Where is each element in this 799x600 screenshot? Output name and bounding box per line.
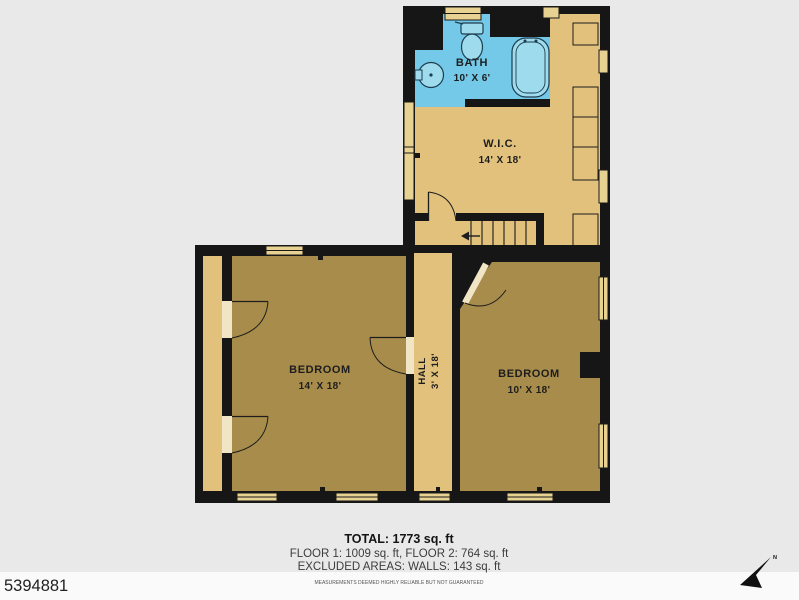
bedroom-right-label: BEDROOM	[498, 368, 560, 380]
bedroom-right-dims: 10' X 18'	[508, 385, 551, 396]
total-area-text: TOTAL: 1773 sq. ft	[344, 532, 454, 546]
bath-wall-notch-right	[490, 14, 550, 37]
window	[404, 102, 414, 200]
photo-id: 5394881	[4, 577, 68, 595]
bath-label: BATH	[456, 57, 488, 69]
bedroom-right-top-wall	[453, 253, 600, 262]
hall-label: HALL	[417, 357, 428, 384]
door-stop	[320, 487, 325, 491]
door-stop	[415, 153, 420, 158]
door-gap	[406, 337, 414, 374]
hall-dims: 3' X 18'	[430, 353, 441, 389]
disclaimer-text: MEASUREMENTS DEEMED HIGHLY RELIABLE BUT …	[314, 580, 483, 586]
lower-section: BEDROOM 14' X 18' HALL 3' X 18' BEDROOM …	[195, 245, 610, 503]
wic-label: W.I.C.	[483, 138, 517, 150]
bathtub-icon	[512, 38, 549, 97]
bath-dims: 10' X 6'	[454, 73, 491, 84]
excluded-areas-text: EXCLUDED AREAS: WALLS: 143 sq. ft	[298, 561, 502, 573]
bedroom-left-dims: 14' X 18'	[299, 381, 342, 392]
bath-lower-wall	[465, 99, 550, 107]
window	[543, 7, 559, 18]
door-stop	[537, 487, 542, 491]
left-closet	[203, 256, 222, 491]
floor-areas-text: FLOOR 1: 1009 sq. ft, FLOOR 2: 764 sq. f…	[290, 548, 509, 560]
door-gap	[222, 416, 232, 453]
floor-plan: BATH 10' X 6' W.I.C. 14' X 18'	[0, 0, 799, 600]
upper-wing: BATH 10' X 6' W.I.C. 14' X 18'	[403, 6, 610, 262]
door-stop	[436, 487, 440, 491]
hall-right-wall	[452, 253, 460, 491]
chimney	[580, 352, 600, 378]
window	[599, 50, 608, 73]
door-stop	[318, 256, 323, 260]
north-label: N	[773, 555, 777, 561]
window	[599, 170, 608, 203]
bottom-strip	[0, 572, 799, 600]
floor-plan-page: BATH 10' X 6' W.I.C. 14' X 18'	[0, 0, 799, 600]
wic-dims: 14' X 18'	[479, 155, 522, 166]
door-gap	[222, 301, 232, 338]
wic-door-gap	[428, 213, 456, 221]
bath-wall-notch-left	[415, 14, 443, 50]
bedroom-left-label: BEDROOM	[289, 364, 351, 376]
